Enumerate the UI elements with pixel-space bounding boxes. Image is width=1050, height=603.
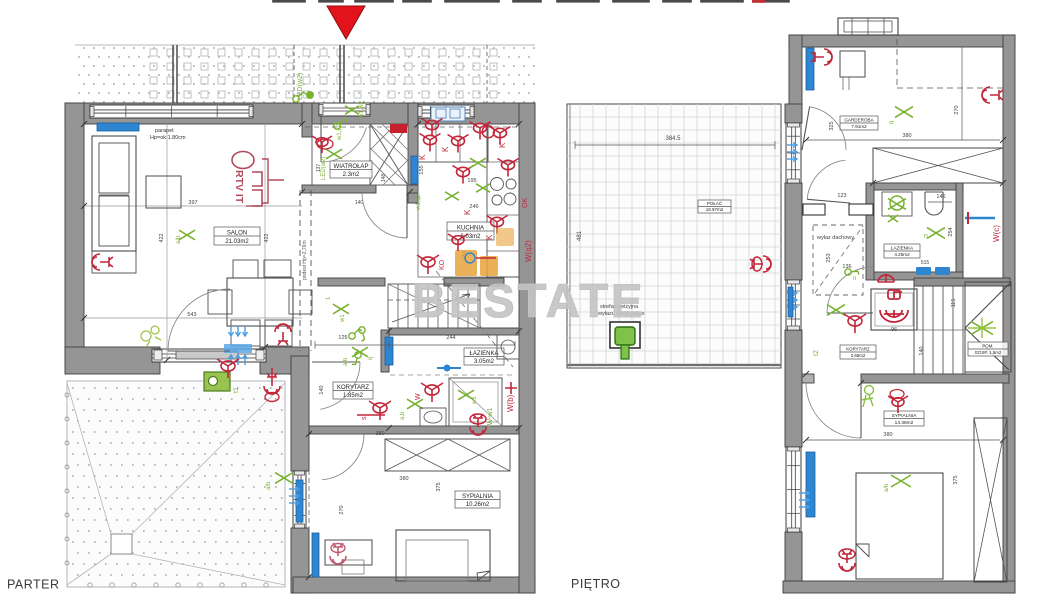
svg-text:a/b: a/b: [176, 235, 182, 244]
svg-text:q: q: [889, 121, 895, 124]
svg-text:SALON: SALON: [227, 231, 247, 237]
svg-text:96: 96: [891, 327, 897, 333]
svg-text:RTV IT: RTV IT: [233, 170, 245, 204]
svg-text:380: 380: [902, 133, 911, 139]
svg-text:254: 254: [948, 227, 954, 236]
svg-text:a,b: a,b: [400, 411, 406, 420]
svg-text:podest Hp=2,76m: podest Hp=2,76m: [302, 240, 308, 280]
svg-text:a,b: a,b: [343, 357, 349, 366]
svg-text:140: 140: [919, 346, 925, 355]
svg-text:W(q2): W(q2): [524, 240, 533, 262]
svg-text:146: 146: [936, 194, 945, 200]
svg-text:t1: t1: [233, 387, 240, 393]
svg-text:w1: w1: [340, 314, 346, 323]
svg-text:140: 140: [319, 385, 325, 394]
svg-text:OK: OK: [522, 198, 529, 208]
svg-text:PW-w1: PW-w1: [487, 407, 494, 430]
svg-text:380: 380: [375, 431, 384, 437]
svg-text:3.05m2: 3.05m2: [474, 359, 495, 365]
svg-text:380: 380: [399, 476, 408, 482]
svg-text:270: 270: [954, 105, 960, 114]
svg-text:397: 397: [188, 200, 197, 206]
svg-text:375: 375: [953, 475, 959, 484]
svg-text:246: 246: [469, 204, 478, 210]
svg-text:SYPIALNIA: SYPIALNIA: [892, 413, 918, 419]
svg-text:K: K: [485, 234, 494, 240]
svg-text:q: q: [368, 357, 374, 360]
svg-text:PIĘTRO: PIĘTRO: [571, 577, 621, 591]
svg-text:4.25m2: 4.25m2: [894, 252, 910, 257]
svg-text:POM.: POM.: [982, 344, 993, 349]
svg-text:253: 253: [826, 253, 832, 262]
svg-text:123: 123: [837, 193, 846, 199]
svg-text:SYPIALNIA: SYPIALNIA: [462, 494, 493, 500]
svg-text:w1: w1: [472, 396, 478, 405]
svg-text:POŁAĆ: POŁAĆ: [707, 200, 723, 206]
svg-text:21.03m2: 21.03m2: [225, 239, 249, 245]
svg-text:148: 148: [381, 174, 387, 183]
svg-text:w1,w2: w1,w2: [359, 100, 365, 119]
svg-text:2.3m2: 2.3m2: [343, 172, 360, 178]
svg-text:a/b: a/b: [884, 483, 890, 492]
svg-text:K: K: [418, 154, 427, 160]
svg-text:wyłaz dachowy: wyłaz dachowy: [816, 235, 854, 241]
svg-text:543: 543: [187, 312, 196, 318]
svg-text:380: 380: [883, 432, 892, 438]
svg-text:KORYTARZ: KORYTARZ: [846, 347, 870, 352]
svg-text:195: 195: [467, 178, 476, 184]
svg-text:18.97m2: 18.97m2: [706, 207, 724, 212]
svg-text:14.38m2: 14.38m2: [895, 420, 914, 426]
svg-text:ŁAZIENKA: ŁAZIENKA: [891, 246, 914, 251]
svg-text:n: n: [924, 233, 928, 240]
svg-text:7.91m2: 7.91m2: [851, 124, 867, 129]
svg-text:s: s: [361, 416, 368, 420]
svg-text:parapet: parapet: [155, 128, 174, 134]
svg-text:422: 422: [159, 233, 165, 242]
svg-text:n: n: [853, 276, 856, 282]
svg-text:244: 244: [446, 335, 455, 341]
svg-text:W(b): W(b): [506, 394, 515, 412]
svg-text:270: 270: [339, 505, 345, 514]
svg-text:515: 515: [921, 260, 930, 266]
svg-text:Hp=ok 1.80cm: Hp=ok 1.80cm: [150, 135, 186, 141]
svg-text:a/b: a/b: [266, 481, 272, 490]
svg-text:422: 422: [264, 233, 270, 242]
svg-text:10.26m2: 10.26m2: [466, 502, 490, 508]
svg-text:K: K: [498, 142, 507, 148]
svg-text:325: 325: [829, 121, 835, 130]
svg-text:W: W: [415, 393, 422, 400]
svg-text:t2: t2: [813, 350, 820, 356]
svg-text:481: 481: [577, 230, 583, 241]
svg-text:384.5: 384.5: [665, 136, 681, 142]
svg-text:PARTER: PARTER: [7, 578, 60, 592]
svg-text:ŁAZIENKA: ŁAZIENKA: [469, 351, 498, 357]
svg-text:GOSP. 1.5m2: GOSP. 1.5m2: [975, 350, 1002, 355]
svg-text:140: 140: [355, 200, 364, 206]
svg-text:115: 115: [951, 299, 957, 308]
svg-text:K: K: [441, 146, 450, 152]
svg-text:155: 155: [419, 165, 425, 174]
svg-text:375: 375: [436, 482, 442, 491]
svg-text:LED(w2): LED(w2): [321, 157, 327, 180]
svg-text:w1,q2: w1,q2: [416, 193, 422, 211]
svg-text:W(c): W(c): [992, 225, 1001, 242]
svg-text:BESTATE: BESTATE: [412, 274, 645, 327]
svg-text:WIATROŁAP: WIATROŁAP: [334, 164, 369, 170]
svg-text:125: 125: [338, 335, 347, 341]
svg-text:KORYTARZ: KORYTARZ: [337, 385, 369, 391]
svg-text:KUCHNIA: KUCHNIA: [457, 226, 484, 232]
svg-text:GARDEROBA: GARDEROBA: [844, 118, 874, 123]
svg-text:3.65m2: 3.65m2: [851, 353, 866, 358]
svg-text:KO: KO: [439, 259, 446, 270]
